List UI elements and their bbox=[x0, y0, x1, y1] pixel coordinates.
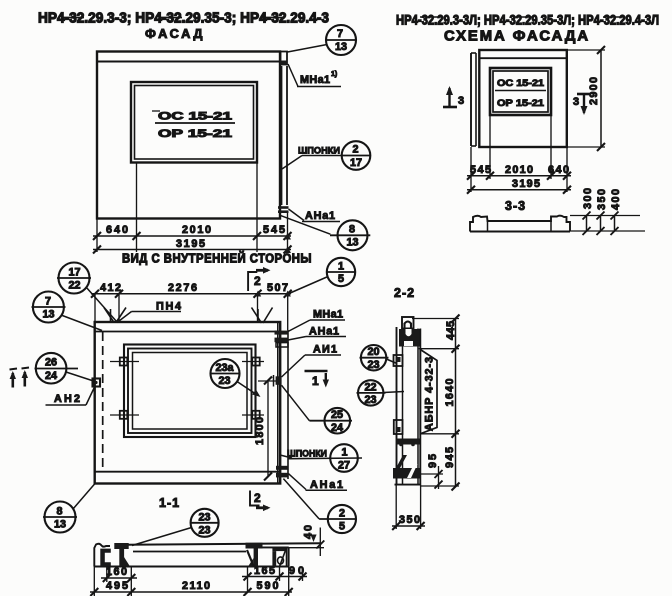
svg-text:350: 350 bbox=[399, 514, 420, 526]
svg-text:ОС 15-21: ОС 15-21 bbox=[497, 78, 545, 89]
svg-text:3195: 3195 bbox=[176, 238, 205, 250]
svg-text:2: 2 bbox=[254, 274, 261, 288]
svg-text:26: 26 bbox=[45, 357, 57, 369]
svg-text:2900: 2900 bbox=[588, 77, 600, 105]
svg-text:160: 160 bbox=[106, 566, 127, 578]
svg-text:90: 90 bbox=[289, 565, 304, 577]
svg-text:1800: 1800 bbox=[254, 417, 266, 445]
svg-text:1: 1 bbox=[312, 374, 319, 388]
svg-text:300: 300 bbox=[582, 188, 594, 209]
svg-text:640: 640 bbox=[548, 164, 569, 176]
svg-text:АНа1: АНа1 bbox=[305, 210, 335, 222]
svg-text:1-1: 1-1 bbox=[159, 496, 180, 510]
svg-text:350: 350 bbox=[596, 189, 608, 210]
svg-text:945: 945 bbox=[444, 447, 456, 468]
svg-text:8: 8 bbox=[57, 506, 63, 518]
svg-text:ВИД С ВНУТРЕННЕЙ СТОРОНЫ: ВИД С ВНУТРЕННЕЙ СТОРОНЫ bbox=[122, 250, 312, 266]
svg-text:МНа1: МНа1 bbox=[313, 309, 343, 321]
svg-text:2: 2 bbox=[254, 491, 261, 505]
svg-text:ПН4: ПН4 bbox=[156, 301, 181, 313]
svg-text:13: 13 bbox=[54, 519, 66, 531]
svg-text:25: 25 bbox=[331, 409, 343, 421]
svg-text:1): 1) bbox=[331, 71, 337, 78]
svg-text:СХЕМА ФАСАДА: СХЕМА ФАСАДА bbox=[444, 28, 590, 45]
svg-text:3: 3 bbox=[458, 95, 464, 107]
svg-text:5: 5 bbox=[339, 521, 345, 533]
svg-text:3-3: 3-3 bbox=[505, 199, 526, 213]
svg-text:23: 23 bbox=[368, 359, 380, 371]
svg-text:23а: 23а bbox=[216, 362, 235, 374]
svg-text:23: 23 bbox=[365, 394, 377, 406]
svg-text:17: 17 bbox=[69, 267, 81, 279]
svg-text:400: 400 bbox=[610, 189, 622, 210]
svg-text:1: 1 bbox=[342, 447, 348, 459]
svg-text:412: 412 bbox=[100, 282, 121, 294]
svg-text:22: 22 bbox=[365, 381, 377, 393]
svg-text:ОР 15-21: ОР 15-21 bbox=[158, 128, 232, 140]
svg-text:3195: 3195 bbox=[512, 178, 540, 190]
svg-text:2: 2 bbox=[353, 144, 359, 156]
svg-text:22: 22 bbox=[69, 280, 81, 292]
svg-text:495: 495 bbox=[106, 580, 128, 592]
svg-text:2010: 2010 bbox=[182, 224, 211, 236]
svg-text:40: 40 bbox=[303, 525, 315, 539]
svg-text:7: 7 bbox=[337, 28, 343, 40]
svg-text:13: 13 bbox=[347, 236, 359, 248]
svg-text:2: 2 bbox=[339, 508, 345, 520]
svg-text:3: 3 bbox=[573, 96, 579, 108]
svg-text:АИ1: АИ1 bbox=[313, 344, 337, 356]
svg-text:640: 640 bbox=[106, 224, 128, 236]
svg-text:13: 13 bbox=[335, 41, 347, 53]
svg-text:ОР 15-21: ОР 15-21 bbox=[497, 98, 545, 109]
svg-text:2276: 2276 bbox=[168, 282, 197, 294]
svg-text:1640: 1640 bbox=[444, 379, 456, 407]
svg-text:НР4-32.29.3-3Л; НР4-32.29.35-3: НР4-32.29.3-3Л; НР4-32.29.35-3Л; НР4-32.… bbox=[396, 13, 659, 28]
svg-text:8: 8 bbox=[349, 223, 355, 235]
svg-text:АНа1: АНа1 bbox=[310, 479, 343, 491]
svg-text:20: 20 bbox=[368, 346, 380, 358]
svg-text:507: 507 bbox=[267, 282, 288, 294]
svg-text:5: 5 bbox=[338, 273, 344, 285]
svg-text:23: 23 bbox=[199, 524, 211, 536]
svg-text:МНа1: МНа1 bbox=[300, 74, 330, 86]
svg-text:АНа1: АНа1 bbox=[309, 326, 339, 338]
svg-text:2010: 2010 bbox=[505, 164, 533, 176]
svg-text:1: 1 bbox=[338, 261, 344, 273]
svg-text:545: 545 bbox=[470, 164, 491, 176]
svg-text:АН2: АН2 bbox=[54, 393, 80, 405]
svg-text:17: 17 bbox=[350, 157, 362, 169]
svg-text:24: 24 bbox=[45, 370, 57, 382]
svg-text:2110: 2110 bbox=[182, 580, 210, 592]
svg-text:545: 545 bbox=[263, 224, 285, 236]
svg-text:165: 165 bbox=[254, 565, 275, 577]
svg-text:ФАСАД: ФАСАД bbox=[145, 27, 205, 41]
svg-text:23: 23 bbox=[219, 375, 231, 387]
svg-text:24: 24 bbox=[331, 422, 343, 434]
svg-text:23: 23 bbox=[199, 511, 211, 523]
svg-text:7: 7 bbox=[45, 296, 51, 308]
svg-text:ОС 15-21: ОС 15-21 bbox=[158, 111, 232, 123]
svg-text:445: 445 bbox=[445, 321, 457, 340]
svg-text:590: 590 bbox=[257, 580, 279, 592]
svg-text:АБНР 4-32-3: АБНР 4-32-3 bbox=[424, 357, 436, 431]
svg-text:27: 27 bbox=[338, 460, 350, 472]
svg-text:13: 13 bbox=[43, 309, 55, 321]
svg-text:95: 95 bbox=[427, 454, 439, 468]
svg-text:2-2: 2-2 bbox=[394, 286, 415, 300]
